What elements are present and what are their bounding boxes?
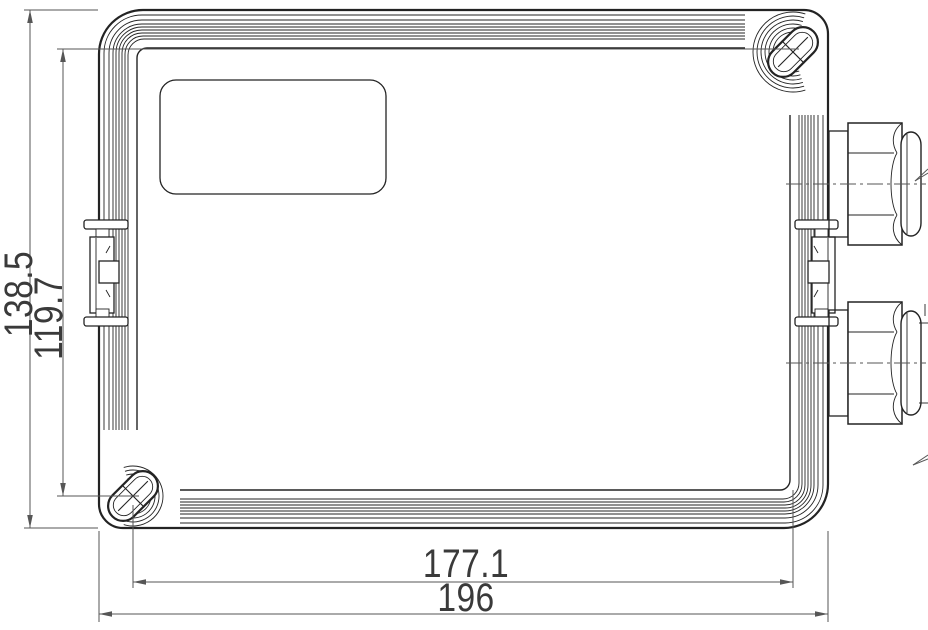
nameplate-recess <box>160 80 386 194</box>
screw-boss-top-right <box>745 12 826 115</box>
hinge-block <box>808 261 829 283</box>
hinge-pin-bottom <box>84 317 128 326</box>
arrow-up-icon <box>27 10 33 23</box>
leader-arrow-icon <box>913 455 928 465</box>
dimension-value: 196 <box>437 575 494 619</box>
arrow-down-icon <box>27 515 33 528</box>
hinge-pin-bottom <box>795 317 838 326</box>
arrow-down-icon <box>60 483 66 496</box>
hinge-block <box>99 261 119 283</box>
enclosure-body <box>99 10 828 528</box>
arrow-right-icon <box>780 579 793 585</box>
arrow-left-icon <box>133 579 146 585</box>
arrow-up-icon <box>60 49 66 62</box>
arrow-left-icon <box>99 611 112 617</box>
enclosure-drawing: 138.5 119.7 177.1 196 <box>0 0 928 630</box>
technical-drawing-page: 138.5 119.7 177.1 196 <box>0 0 928 630</box>
hinge-left <box>84 220 128 326</box>
lid-seal-lines <box>104 15 823 523</box>
hinge-pin-top <box>84 220 128 229</box>
dimension-hole-spacing-vertical: 119.7 <box>26 49 799 496</box>
dimension-overall-height: 138.5 <box>0 10 98 528</box>
screw-boss-bottom-left <box>101 430 180 528</box>
inner-wall-line <box>137 48 790 490</box>
arrow-right-icon <box>815 611 828 617</box>
enclosure-outline <box>99 10 828 528</box>
hinge-pin-top <box>795 220 838 229</box>
dimension-value: 119.7 <box>26 276 70 360</box>
